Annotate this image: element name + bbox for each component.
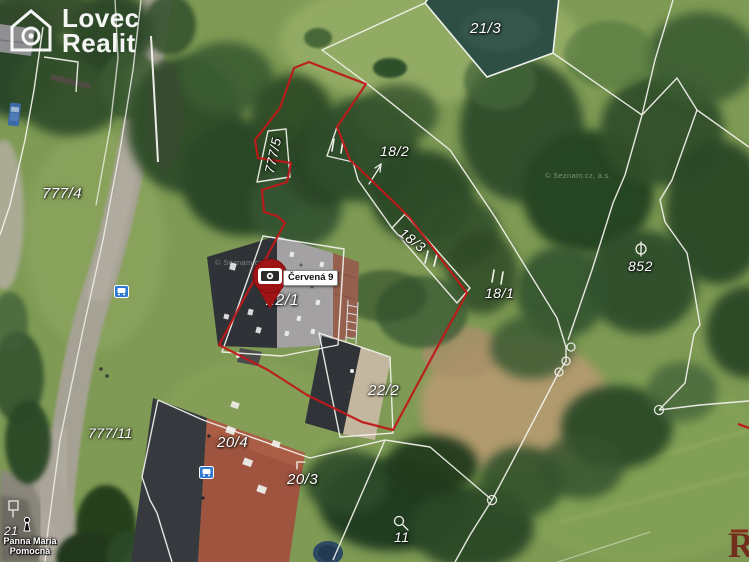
church-poi-label-line2: Pomocná (1, 547, 59, 557)
parcel-label-11: 11 (394, 529, 410, 545)
parcel-label-20-3: 20/3 (287, 471, 318, 488)
bus-stop-icon[interactable] (114, 285, 129, 298)
brand-logo: Lovec Realit (8, 6, 140, 57)
parcel-label-852: 852 (628, 258, 653, 274)
parcel-label-21-3: 21/3 (470, 20, 501, 37)
copyright-watermark: © Seznam.cz, a.s. (545, 171, 611, 180)
statue-icon[interactable] (20, 516, 34, 533)
parcel-label-18-1: 18/1 (485, 285, 514, 301)
property-pin-label[interactable]: Červená 9 (283, 270, 338, 286)
house-aperture-icon (8, 6, 54, 54)
camera-icon (258, 268, 282, 284)
bus-stop-icon[interactable] (199, 466, 214, 479)
aerial-imagery (0, 0, 749, 562)
map-viewport[interactable]: 21/3 777/4 777/5 18/2 18/3 18/1 852 22/1… (0, 0, 749, 562)
parcel-label-18-2: 18/2 (380, 143, 409, 159)
parcel-label-777-11: 777/11 (88, 425, 133, 441)
parcel-label-20-4: 20/4 (217, 434, 248, 451)
brand-name-line2: Realit (62, 31, 140, 56)
parcel-label-777-4: 777/4 (42, 185, 82, 202)
church-poi-label: Panna Maria Pomocná (1, 537, 59, 556)
corner-watermark-letter: R (728, 524, 749, 562)
parcel-label-22-2: 22/2 (368, 382, 399, 399)
